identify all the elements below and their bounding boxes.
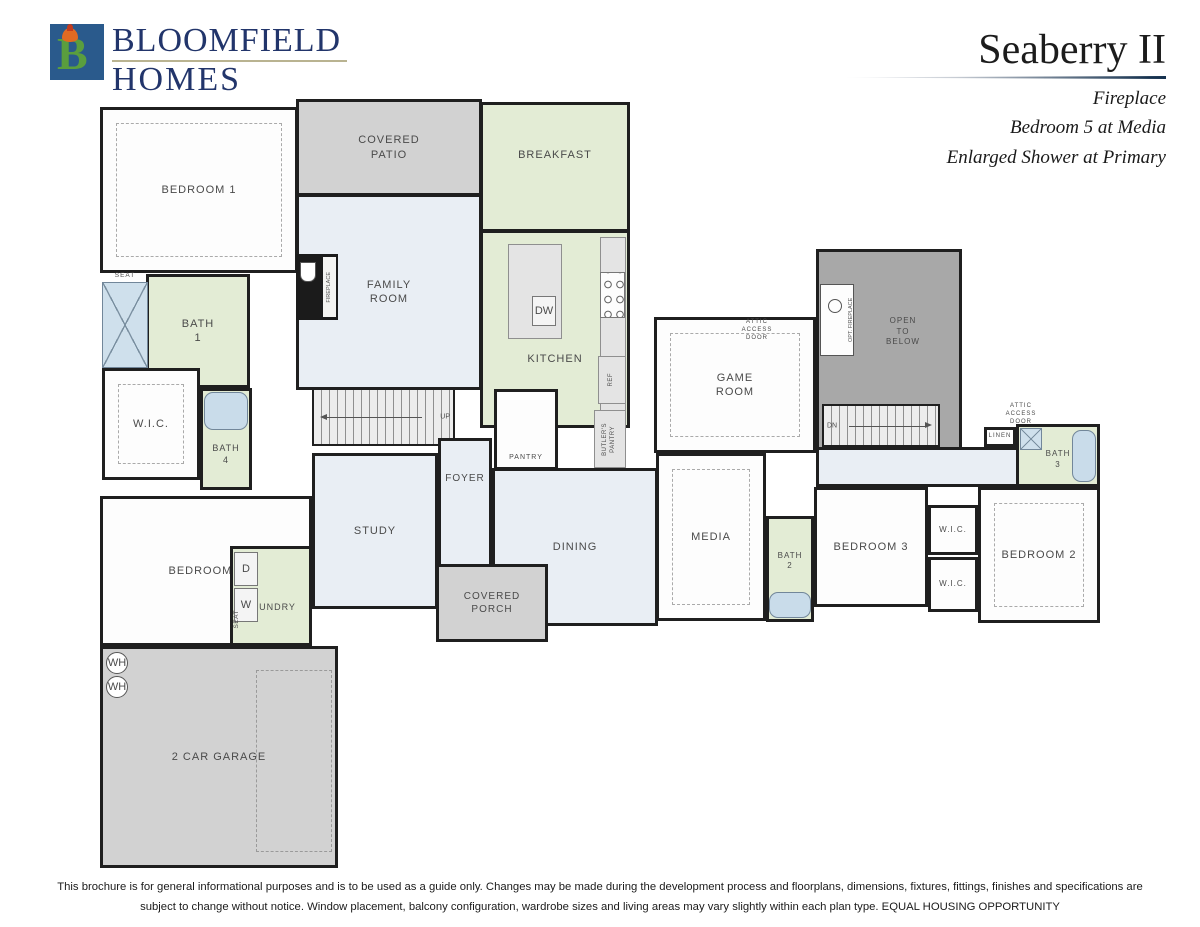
cooktop bbox=[600, 272, 625, 318]
dryer: D bbox=[234, 552, 258, 586]
stairs-down: DN bbox=[822, 404, 940, 447]
study: STUDY bbox=[312, 453, 438, 609]
seat-label-laundry: SEAT bbox=[230, 598, 244, 640]
bedroom-3: BEDROOM 3 bbox=[814, 487, 928, 607]
covered-patio: COVERED PATIO bbox=[296, 99, 482, 196]
ref-label: REF bbox=[600, 358, 624, 402]
disclaimer-line: This brochure is for general information… bbox=[0, 878, 1200, 898]
optional-fireplace: OPT. FIREPLACE bbox=[820, 284, 854, 356]
pantry: PANTRY bbox=[494, 389, 558, 470]
seat-label-bath-1: SEAT bbox=[102, 271, 148, 281]
stairs-up: UP bbox=[312, 388, 455, 446]
upstairs-hall bbox=[816, 447, 1032, 487]
wic-primary: W.I.C. bbox=[102, 368, 200, 480]
shower-bath-3 bbox=[1020, 428, 1042, 450]
garage-bay-outline bbox=[256, 670, 332, 852]
shower-bath-1 bbox=[102, 282, 148, 368]
brochure-page: B BLOOMFIELD HOMES Seaberry II Fireplace… bbox=[0, 0, 1200, 927]
disclaimer: This brochure is for general information… bbox=[0, 878, 1200, 918]
water-heater-2: WH bbox=[106, 676, 128, 698]
fireplace: FIREPLACE bbox=[296, 254, 338, 320]
disclaimer-line: subject to change without notice. Window… bbox=[0, 898, 1200, 918]
dishwasher: DW bbox=[532, 296, 556, 326]
tub-bath-2 bbox=[769, 592, 811, 618]
media: MEDIA bbox=[656, 453, 766, 621]
breakfast: BREAKFAST bbox=[480, 102, 630, 232]
wic-bedroom-2: W.I.C. bbox=[928, 557, 978, 612]
floor-plan-canvas: BEDROOM 1COVERED PATIOBREAKFASTFAMILY RO… bbox=[0, 0, 1200, 927]
linen: LINEN bbox=[984, 427, 1016, 447]
bedroom-1: BEDROOM 1 bbox=[100, 107, 298, 273]
water-heater-1: WH bbox=[106, 652, 128, 674]
bedroom-2: BEDROOM 2 bbox=[978, 487, 1100, 623]
butlers-pantry-label: BUTLER'S PANTRY bbox=[596, 412, 624, 466]
attic-access-door-label-1: ATTIC ACCESS DOOR bbox=[734, 318, 780, 344]
tub-bath-4 bbox=[204, 392, 248, 430]
covered-porch: COVERED PORCH bbox=[436, 564, 548, 642]
wic-bedroom-3: W.I.C. bbox=[928, 505, 978, 555]
tub-bath-3 bbox=[1072, 430, 1096, 482]
